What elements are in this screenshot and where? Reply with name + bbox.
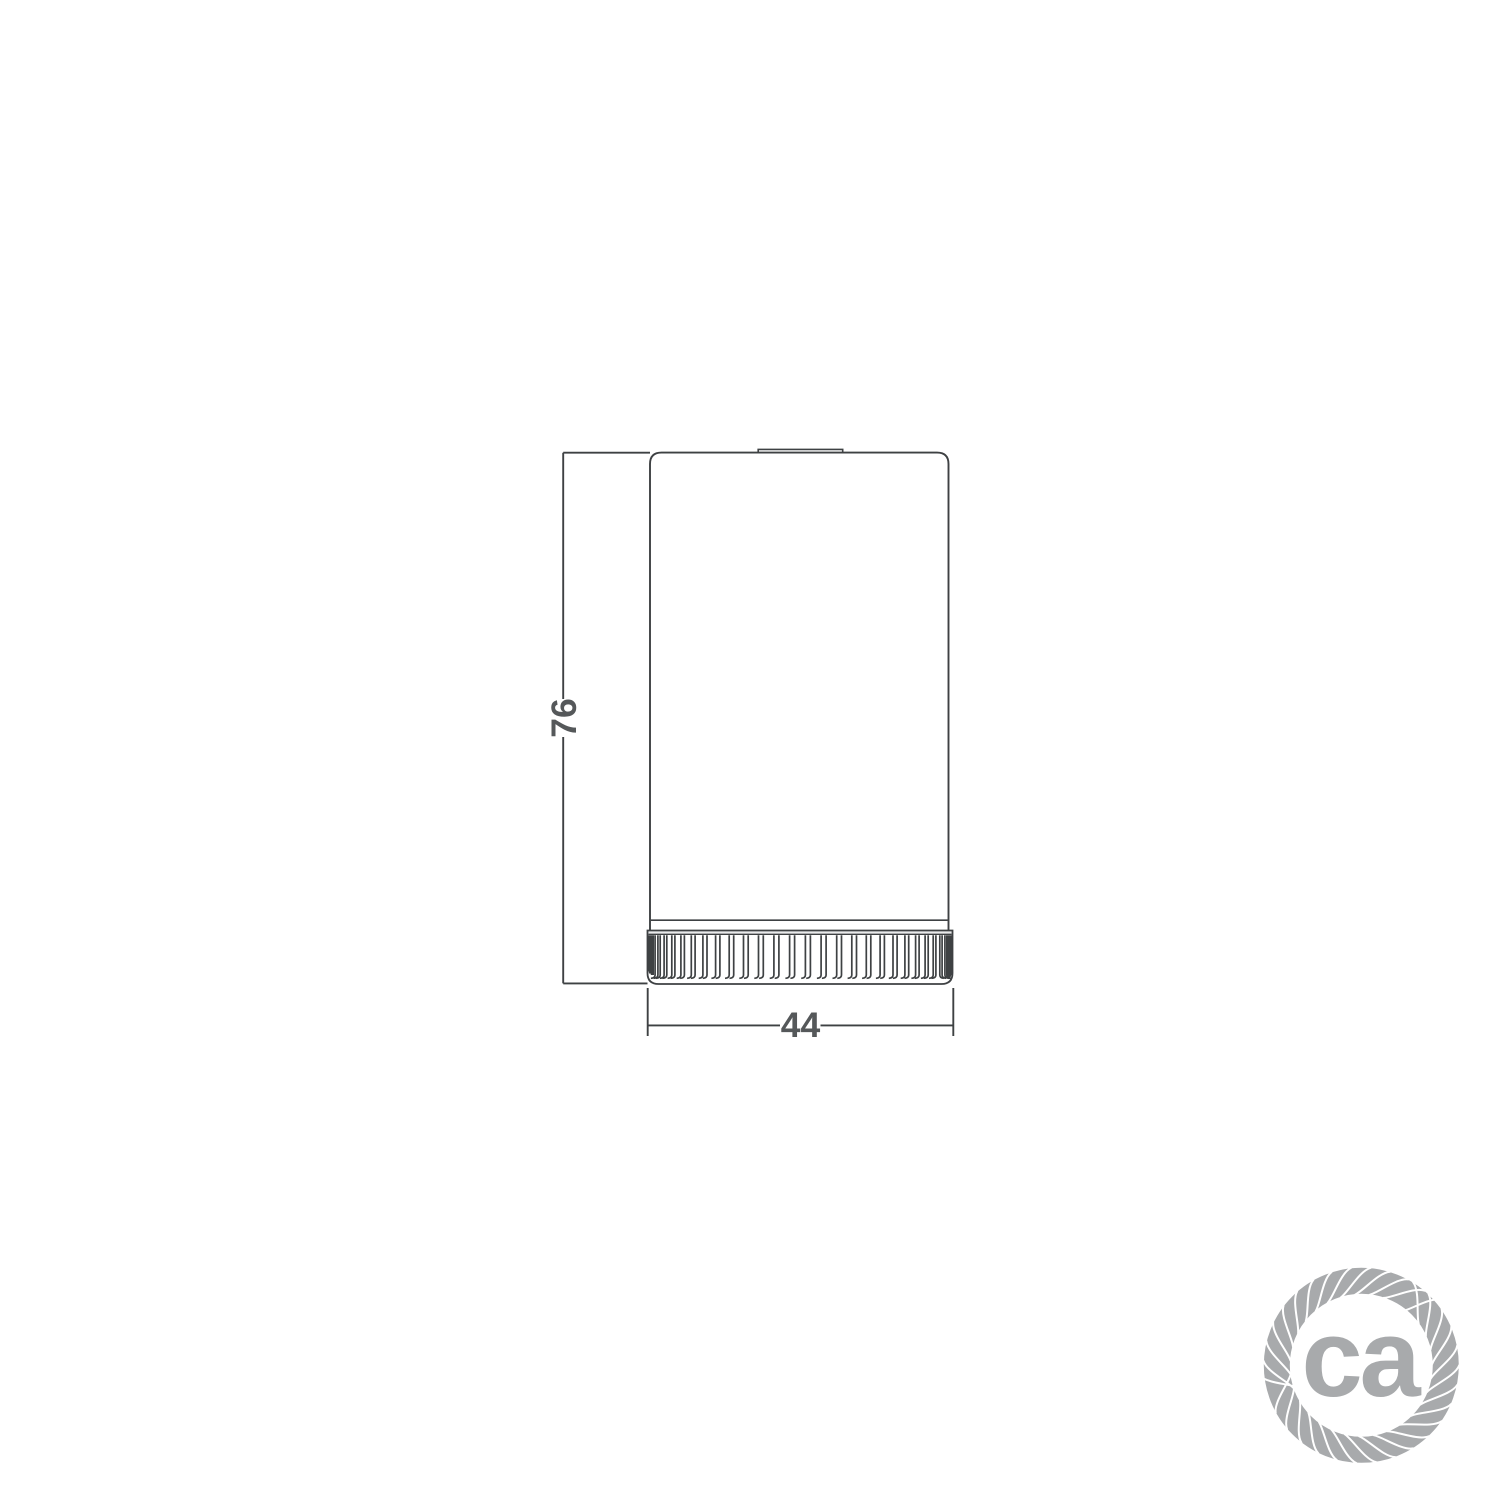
svg-text:76: 76 — [544, 698, 584, 738]
svg-text:44: 44 — [781, 1005, 821, 1045]
svg-text:ca: ca — [1302, 1297, 1422, 1420]
